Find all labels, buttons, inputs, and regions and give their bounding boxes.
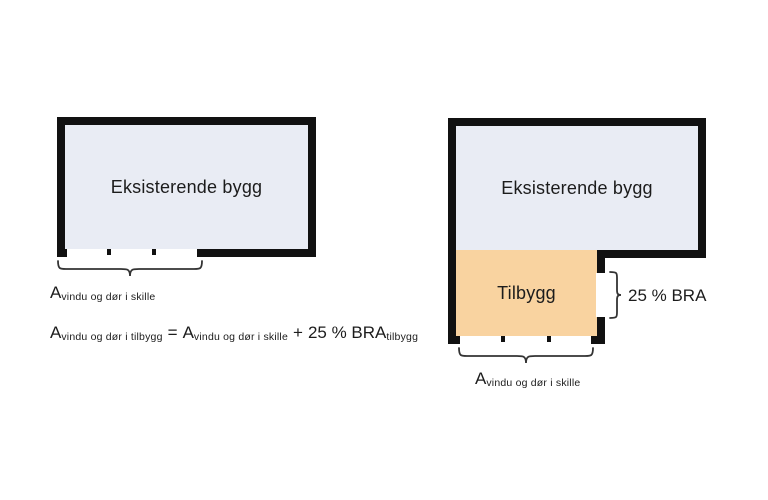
- right-area-label-sub: vindu og dør i skille: [486, 377, 580, 389]
- left-area-label-sub: vindu og dør i skille: [61, 291, 155, 303]
- right-left-wall: [448, 118, 456, 344]
- extension-area: Tilbygg: [456, 250, 597, 336]
- left-area-label: A vindu og dør i skille: [50, 283, 155, 303]
- existing-building-left-label: Eksisterende bygg: [111, 177, 263, 198]
- right-window-door-band: [460, 336, 591, 344]
- extension-side-window: [596, 273, 606, 317]
- window-divider-icon: [547, 336, 551, 342]
- left-area-label-main: A: [50, 283, 61, 303]
- brace-down-icon: [57, 260, 203, 278]
- window-divider-icon: [107, 249, 111, 255]
- right-area-label-main: A: [475, 369, 486, 389]
- formula-rhs1-sub: vindu og dør i skille: [194, 331, 288, 343]
- window-divider-icon: [501, 336, 505, 342]
- extension-label: Tilbygg: [497, 283, 556, 304]
- existing-building-left: Eksisterende bygg: [57, 117, 316, 257]
- right-notch-wall: [597, 250, 706, 258]
- right-area-label: A vindu og dør i skille: [475, 369, 580, 389]
- formula-rhs2-sub: tilbygg: [386, 331, 418, 343]
- equals-sign: =: [168, 323, 178, 343]
- plus-sign: +: [293, 323, 303, 343]
- formula-rhs1-main: A: [183, 323, 194, 343]
- existing-building-right: Eksisterende bygg: [456, 126, 698, 250]
- brace-down-icon: [458, 347, 594, 365]
- right-top-wall: [448, 118, 706, 126]
- existing-building-right-label: Eksisterende bygg: [501, 178, 653, 199]
- window-divider-icon: [152, 249, 156, 255]
- bra-percent-label: 25 % BRA: [628, 286, 706, 306]
- formula: A vindu og dør i tilbygg = A vindu og dø…: [50, 323, 418, 343]
- canvas: { "colors": { "existing_building_fill": …: [0, 0, 768, 500]
- left-window-door-band: [67, 249, 197, 257]
- brace-right-icon: [609, 271, 623, 319]
- formula-lhs-main: A: [50, 323, 61, 343]
- right-right-wall: [698, 118, 706, 258]
- formula-rhs2-main: 25 % BRA: [308, 323, 386, 343]
- formula-lhs-sub: vindu og dør i tilbygg: [61, 331, 162, 343]
- bra-percent-text: 25 % BRA: [628, 286, 706, 305]
